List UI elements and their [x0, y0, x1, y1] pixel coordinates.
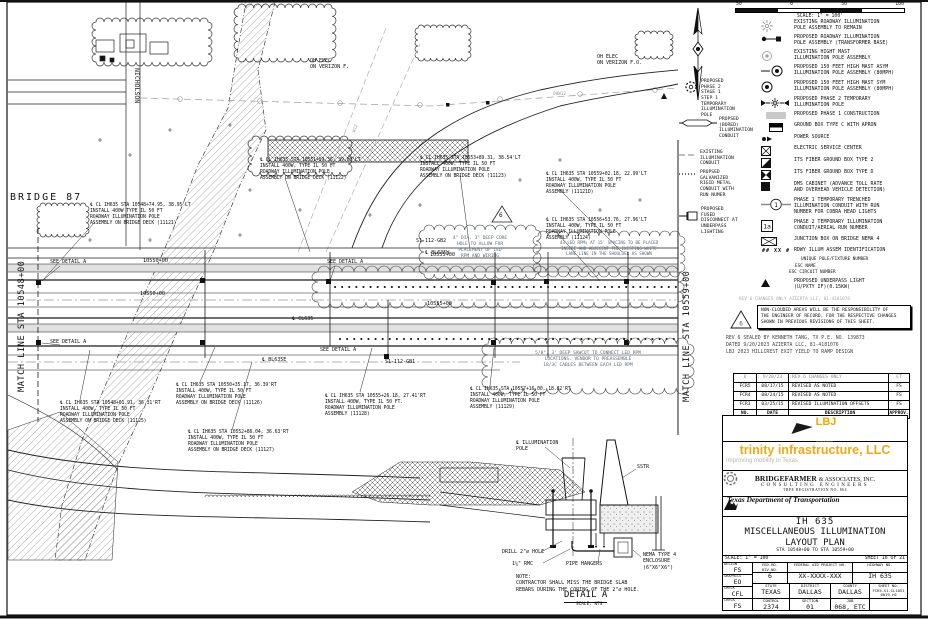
temp-pole-icon	[684, 80, 698, 94]
legend-item-existing-pole: EXISTING ROADWAY ILLUMINATION POLE ASSEM…	[761, 20, 879, 32]
detail-pole-cl-label: ℄ ILLUMINATION POLE	[516, 440, 558, 453]
legend-item-phase1-conduit: 1 PHASE 1 TEMPORARY TRENCHED ILLUMINATIO…	[761, 198, 879, 215]
led-rpm-note: 43 LED RPMs AT 15' SPACING TO BE PLACED …	[540, 240, 678, 257]
oh-elec-label-2: OH ELEC ON VERIZON F.O.	[597, 54, 642, 67]
scale-bar-graphic	[735, 8, 905, 14]
rdwy-id-sub-unique: UNIQUE POLE/FIXTURE NUMBER	[801, 257, 868, 262]
bridgefarmer-rest: & ASSOCIATES, INC.	[819, 477, 875, 483]
pole-callout-11128: ℄ CL IH635 STA 10555+26.18, 27.41'RT INS…	[325, 394, 426, 417]
station-10550-label-1: 10550+00	[143, 258, 168, 265]
pole-callout-11129: ℄ CL IH635 STA 10557+16.00, 18.82'RT INS…	[470, 387, 571, 410]
legend-panel: 50 0 50 100 SCALE: 1" = 100' EXISTING RO…	[679, 0, 928, 619]
detail-pipe-hangers-label: PIPE HANGERS	[566, 561, 602, 567]
legend-item-existing-high-mast: EXISTING HIGHT MAST ILLUMINATION POLE AS…	[761, 50, 871, 62]
revision-row: 6 9/20/23 REV 6 CHANGES ONLY ET	[733, 373, 910, 383]
trinity-name: trinity infrastructure, LLC	[723, 444, 907, 458]
grm-conduit-icon	[679, 172, 697, 176]
svg-text:6: 6	[739, 321, 743, 328]
fap-value: XX-XXXX-XXX	[788, 573, 852, 580]
dms-cabinet-icon	[761, 182, 791, 194]
proposed-pole-icon	[761, 35, 791, 47]
svg-text:1a: 1a	[763, 223, 771, 231]
legend-item-junction-box: JUNCTION BOX ON BRIDGE NEMA 4	[761, 237, 879, 243]
existing-pole-icon	[761, 20, 791, 32]
its-fiber-typed-icon	[761, 170, 791, 176]
see-detail-a-label-3: SEE DETAIL A	[50, 339, 86, 345]
txdot-logo-icon: ★	[723, 497, 739, 512]
pole-callout-11123: ℄ CL IH635 STA 10553+89.31, 38.54'LT INS…	[420, 156, 521, 179]
existing-conduit-icon	[679, 153, 697, 157]
plan-sheet: BRIDGE 87 NICHOLSON MATCH LINE STA 10548…	[0, 0, 928, 619]
control-value: 2374	[753, 604, 789, 610]
phase1-conduit-icon: 1	[761, 198, 791, 215]
see-detail-a-label-2: SEE DETAIL A	[327, 259, 363, 265]
match-line-left-label: MATCH LINE STA 10548+00	[17, 260, 27, 392]
core-hole-note: 4" DIA. 3" DEEP CORE HOLE TO ALLOW FOR P…	[428, 236, 532, 260]
revision-row: FCR4 08/24/15 REVISED AS NOTED FS	[733, 392, 910, 401]
legend-left-bored-conduit-label: PROPSED (BORED) ILLUMINATION CONDUIT	[719, 117, 753, 140]
fused-disconnect-icon	[679, 210, 699, 222]
title-block-stack: LBJ express trinity infrastructure, LLC …	[722, 415, 908, 611]
scale-tick: 50	[736, 2, 742, 7]
trinity-logo: trinity infrastructure, LLC Improving mo…	[722, 442, 908, 471]
lbj-swoosh-icon	[791, 423, 814, 434]
rev6-seal-note: REV 6 SEALED BY KENNETH TANG, TX P.E. NO…	[726, 335, 865, 357]
electric-service-center-icon	[761, 146, 791, 152]
bridgefarmer-name: BRIDGEFARMER	[755, 474, 817, 483]
junction-box-icon	[761, 237, 791, 243]
title-scale: SCALE: 1" = 100'	[725, 556, 771, 561]
scale-tick: 100	[895, 2, 904, 7]
legend-item-underpass-light: PROPOSED UNDERPASS LIGHT (U/PXTY IF)(0.1…	[761, 279, 865, 291]
bridge-87-label: BRIDGE 87	[10, 192, 82, 205]
buildings	[96, 34, 168, 62]
cl635-label: ℄ CL635	[292, 316, 313, 322]
legend-item-dms: DMS CABINET (ADVANCE TOLL RATE AND OVERH…	[761, 182, 885, 194]
hwy-label: HIGHWAY NO.	[853, 563, 907, 568]
legend-item-high-mast-sym: PROPOSED 150 FEET HIGH MAST SYM ILLUMINA…	[761, 81, 894, 93]
rdwy-id-code: ## XX #	[761, 248, 791, 254]
fap-label: FEDERAL AID PROJECT NO.	[788, 563, 852, 568]
txdot-name: Texas Department of Transportation	[727, 495, 840, 504]
title-stations: STA 10548+00 TO STA 10559+00	[723, 548, 907, 553]
legend-item-phase2-temp-pole: PROPOSED PHASE 2 TEMPORARY ILLUMINATION …	[761, 97, 871, 109]
existing-high-mast-icon	[761, 50, 791, 62]
svg-text:1: 1	[774, 202, 778, 209]
scale-tick: 0	[790, 2, 793, 7]
station-10550-label-2: 10550+00	[140, 291, 165, 298]
gb1-label: S1-112-GB1	[385, 359, 415, 365]
scale-bar: 50 0 50 100 SCALE: 1" = 100'	[735, 2, 905, 19]
job-value: 068, ETC	[831, 604, 869, 610]
detail-drill-label: DRILL 2"∅ HOLE	[502, 549, 544, 555]
legend-item-esc: ELECTRIC SERVICE CENTER	[761, 146, 862, 152]
pole-callout-11125: ℄ CL IH635 STA 10548+01.91, 36.31'RT INS…	[60, 401, 161, 424]
creek-hatch	[8, 2, 585, 560]
title-line2: MISCELLANEOUS ILLUMINATION	[723, 527, 907, 537]
revision-triangle-number: 6	[499, 212, 503, 220]
detail-nema-label: NEMA TYPE 4 ENCLOSURE (6"X6"X6")	[643, 552, 676, 571]
sawcut-note: 5/8", 3' DEEP SAWCUT TO CONNECT LED RPM …	[492, 351, 684, 369]
non-clouded-warning-note: NON-CLOUDED AREAS WILL BE THE RESPONSIBI…	[757, 305, 911, 329]
legend-item-its-fiber-d: ITS FIBER GROUND BOX TYPE D	[761, 170, 874, 176]
legend-item-rdwy-id: ## XX # RDWY ILLUM ASSEM IDENTIFICATION	[761, 248, 885, 254]
phase1-construction-swatch	[761, 112, 791, 119]
legend-left-grm-conduit-label: PROPSED GALVANIZED RIGID METAL CONDUIT W…	[700, 170, 734, 198]
fedrd-label: FED.RD. DIV.NO.	[753, 563, 787, 572]
phase2-temp-pole-icon	[761, 97, 791, 109]
legend-item-phase2-run: 1a PHASE 2 TEMPORARY ILLUMINATION CONDUI…	[761, 220, 882, 232]
bl635e-label: ℄ BL635E	[262, 357, 286, 363]
project-info-table: DESIGNFS GRAPHICSEO CHECKCFL CHECKFS FED…	[722, 563, 908, 611]
nicholson-street-label: NICHOLSON	[133, 68, 141, 103]
fedrd-value: 6	[753, 573, 787, 580]
legend-item-ground-box: GROUND BOX TYPE C WITH APRON	[761, 123, 876, 132]
graphics-value: EO	[723, 579, 752, 586]
high-mast-sym-icon	[761, 81, 791, 93]
high-mast-asym-icon	[761, 65, 791, 77]
pole-callout-11124: ℄ CL IH635 STA 10556+53.76, 27.96'LT INS…	[546, 218, 647, 241]
sheetno-value: FCR5-S1-IL1051 0019-r0	[870, 589, 907, 598]
see-detail-a-label-1: SEE DETAIL A	[50, 259, 86, 265]
power-source-icon	[761, 135, 791, 141]
ohw12-label: OHW12	[553, 92, 566, 97]
district-value: DALLAS	[790, 589, 830, 596]
detail-a-scale: SCALE: NTS	[576, 602, 602, 608]
check2-value: FS	[723, 603, 752, 610]
legend-left-temp-pole-label: PROPOSED PHASE 2 STAGE 1 STEP 1 TEMPORAR…	[701, 79, 735, 118]
revision-row: FCR5 08/17/15 REVISED AS NOTED FS	[733, 383, 910, 392]
pole-callout-11121d: ℄ CL IH635 STA 10559+02.18, 22.99'LT INS…	[546, 172, 647, 195]
design-value: FS	[723, 567, 752, 574]
bridgefarmer-gear-icon	[723, 471, 738, 486]
phase2-run-number-icon: 1a	[761, 220, 791, 232]
legend-item-its-fiber-2: ITS FIBER GROUND BOX TYPE 2	[761, 158, 874, 164]
lbj-name: LBJ	[816, 416, 837, 428]
title-sheet-of: SHEET 16 OF 21	[865, 556, 905, 561]
lbj-express-logo: LBJ express	[722, 415, 908, 442]
title-highway: IH 635	[723, 517, 907, 527]
trinity-tagline: Improving mobility in Texas	[723, 458, 907, 464]
its-fiber-type2-icon	[761, 158, 791, 164]
county-value: DALLAS	[831, 589, 869, 596]
pole-callout-11126: ℄ CL IH635 STA 10550+35.17, 36.39'RT INS…	[176, 383, 277, 406]
pole-callout-11122: ℄ CL IH635 STA 10551+59.36, 39.00'LT INS…	[260, 158, 361, 181]
sheet-title-block: IH 635 MISCELLANEOUS ILLUMINATION LAYOUT…	[722, 517, 908, 563]
underpass-light-icon	[761, 279, 791, 291]
legend-left-fused-disconnect-label: PROPOSED FUSED DISCONNECT AT UNDERPASS L…	[701, 207, 738, 235]
rev-changes-grayline: REV 6 CHANGES ONLY AZIERTA LLC, 81-41810…	[739, 297, 850, 302]
state-value: TEXAS	[753, 589, 789, 596]
check1-value: CFL	[723, 591, 752, 598]
legend-item-proposed-pole: PROPOSED ROADWAY ILLUMINATION POLE ASSEM…	[761, 35, 888, 47]
hwy-value: IH 635	[853, 573, 907, 580]
title-line3: LAYOUT PLAN	[723, 538, 907, 548]
see-detail-a-label-4: SEE DETAIL A	[320, 347, 356, 353]
pole-callout-11127: ℄ CL IH635 STA 10552+86.04, 36.63'RT INS…	[188, 430, 289, 453]
legend-item-phase1-construction: PROPOSED PHASE 1 CONSTRUCTION	[761, 112, 879, 119]
detail-rmc-label: 1¼" RMC	[512, 561, 533, 567]
rdwy-id-sub-esc-name: ESC NAME	[795, 264, 816, 269]
legend-left-existing-conduit-label: EXISTING ILLUMINATION CONDUIT	[700, 150, 734, 167]
svg-text:★: ★	[729, 500, 734, 507]
rdwy-id-sub-esc-circuit: ESC CIRCUIT NUMBER	[789, 270, 836, 275]
oh-elec-label-1: OH ELEC ON VERIZON F.	[310, 58, 349, 71]
legend-item-high-mast-asym: PROPOSED 150 FEET HIGH MAST ASYM ILLUMIN…	[761, 65, 894, 77]
scale-tick: 50	[841, 2, 847, 7]
ground-box-icon	[761, 123, 791, 132]
bored-conduit-icon	[679, 119, 717, 127]
legend-item-power-source: POWER SOURCE	[761, 135, 829, 141]
section-value: 01	[790, 604, 830, 610]
station-10555-label-2: 10555+00	[427, 301, 452, 308]
revision-triangle-icon: 6	[729, 308, 753, 330]
detail-sstr-label: SSTR	[637, 464, 649, 470]
pole-callout-11121: ℄ CL IH635 STA 10548+74.95, 38.95'LT INS…	[90, 203, 191, 226]
txdot-logo-block: ★ Texas Department of Transportation ©20…	[722, 497, 908, 517]
